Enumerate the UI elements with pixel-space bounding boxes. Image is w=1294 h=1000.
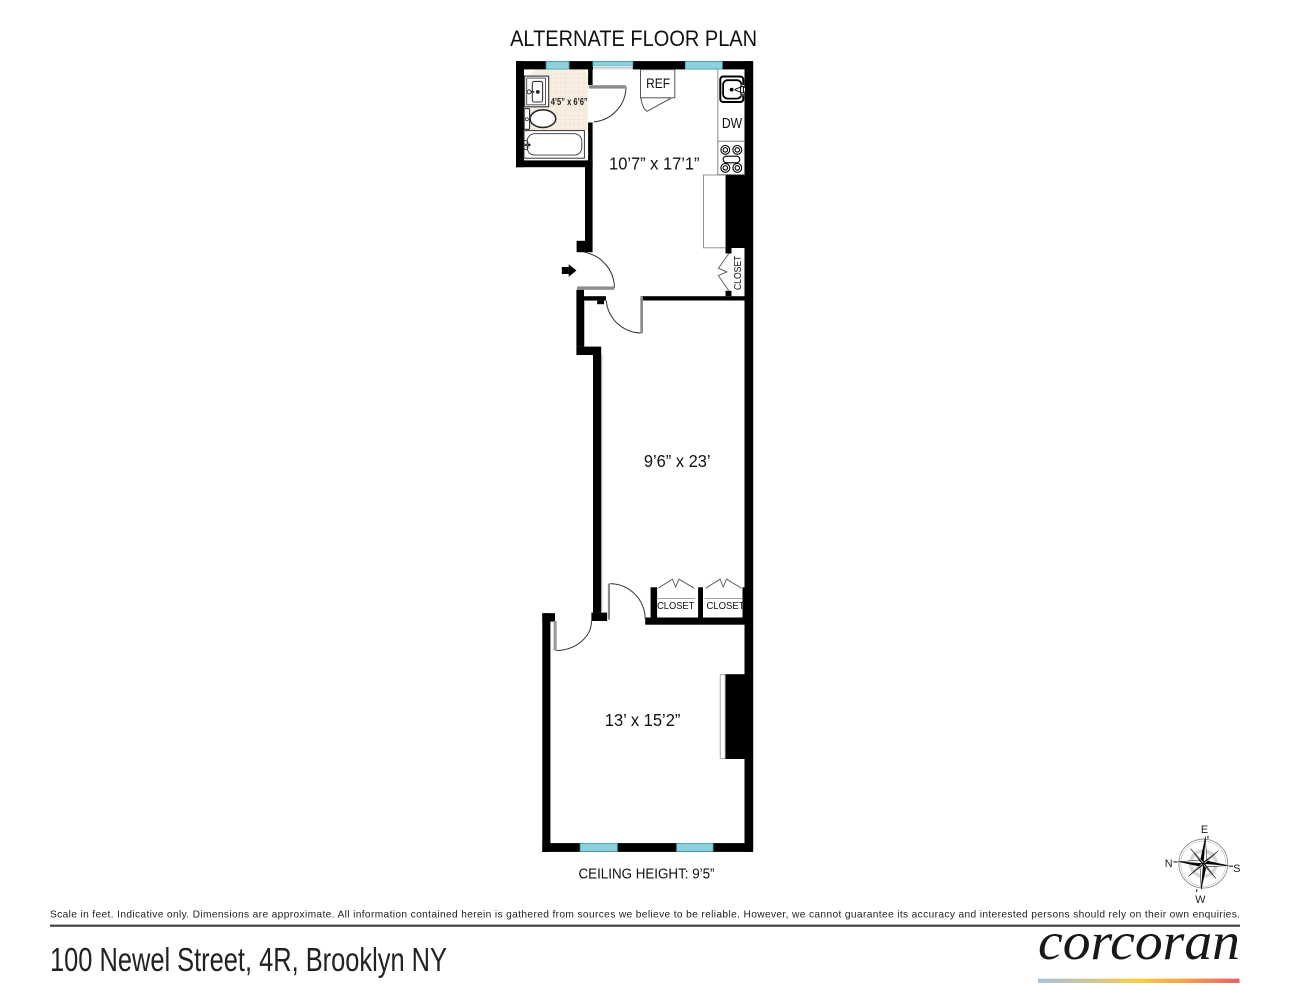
svg-text:13’ x 15’2”: 13’ x 15’2” bbox=[605, 710, 681, 730]
svg-text:4’5” x 6’6”: 4’5” x 6’6” bbox=[551, 97, 588, 108]
svg-text:CLOSET: CLOSET bbox=[732, 255, 744, 290]
svg-text:REF: REF bbox=[646, 76, 670, 91]
svg-text:S: S bbox=[1233, 863, 1240, 875]
svg-text:CLOSET: CLOSET bbox=[657, 601, 695, 612]
svg-text:100 Newel Street, 4R, Brooklyn: 100 Newel Street, 4R, Brooklyn NY bbox=[50, 942, 447, 979]
svg-text:E: E bbox=[1201, 824, 1208, 836]
svg-text:N: N bbox=[1165, 858, 1173, 870]
svg-text:W: W bbox=[1195, 894, 1206, 906]
svg-text:CEILING HEIGHT: 9’5”: CEILING HEIGHT: 9’5” bbox=[579, 866, 715, 883]
svg-text:DW: DW bbox=[722, 116, 743, 132]
svg-text:9’6” x 23’: 9’6” x 23’ bbox=[644, 451, 711, 471]
svg-text:ALTERNATE FLOOR PLAN: ALTERNATE FLOOR PLAN bbox=[510, 26, 757, 51]
svg-text:CLOSET: CLOSET bbox=[707, 601, 746, 612]
svg-text:10’7” x 17’1”: 10’7” x 17’1” bbox=[609, 154, 700, 174]
svg-text:corcoran: corcoran bbox=[1038, 913, 1240, 971]
